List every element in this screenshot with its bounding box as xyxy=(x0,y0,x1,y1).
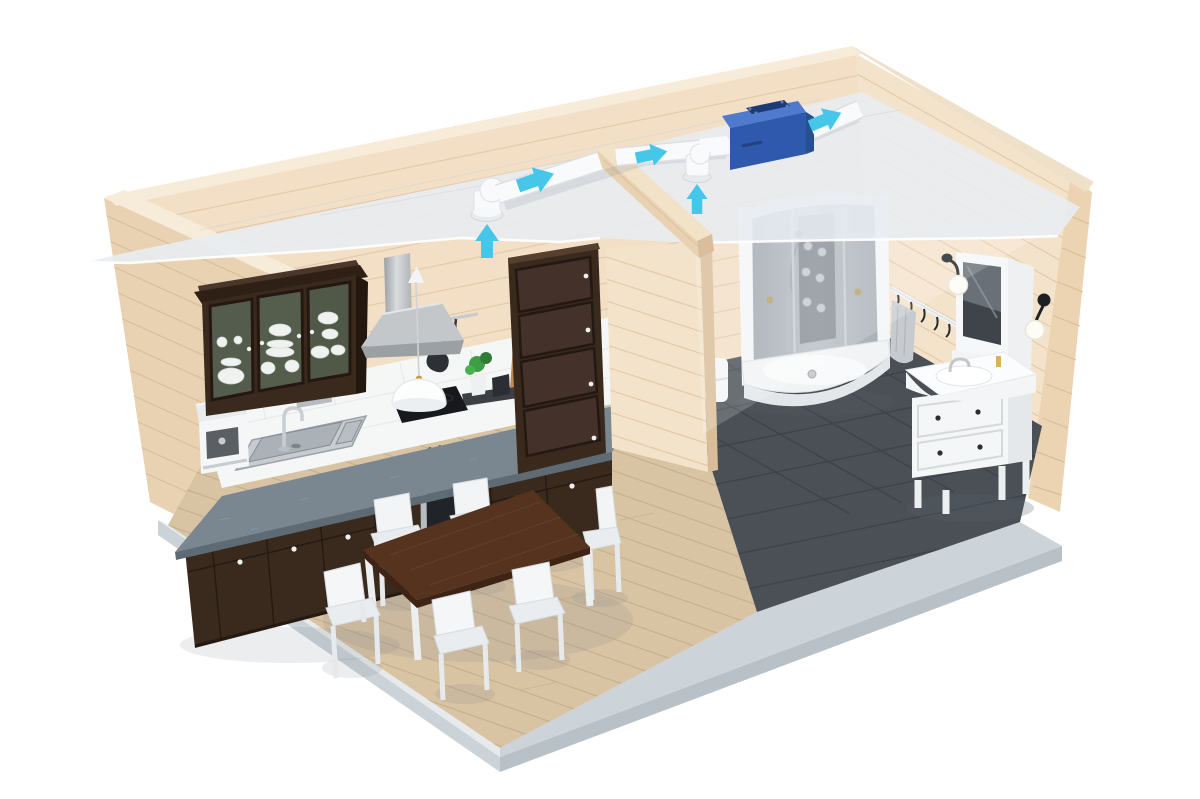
tall-cabinet xyxy=(508,243,606,474)
vanity-bottle xyxy=(996,356,1001,367)
vanity-side xyxy=(1008,386,1032,464)
faucet-base xyxy=(278,446,290,451)
fan-side xyxy=(806,112,814,154)
upper-cabinet xyxy=(194,260,368,416)
scene-render: 3D cutaway render of a timber house inte… xyxy=(0,0,1200,799)
vanity-basin xyxy=(936,366,992,386)
sconce-globe xyxy=(1026,321,1045,340)
house-cutaway-illustration: 3D cutaway render of a timber house inte… xyxy=(0,0,1200,799)
